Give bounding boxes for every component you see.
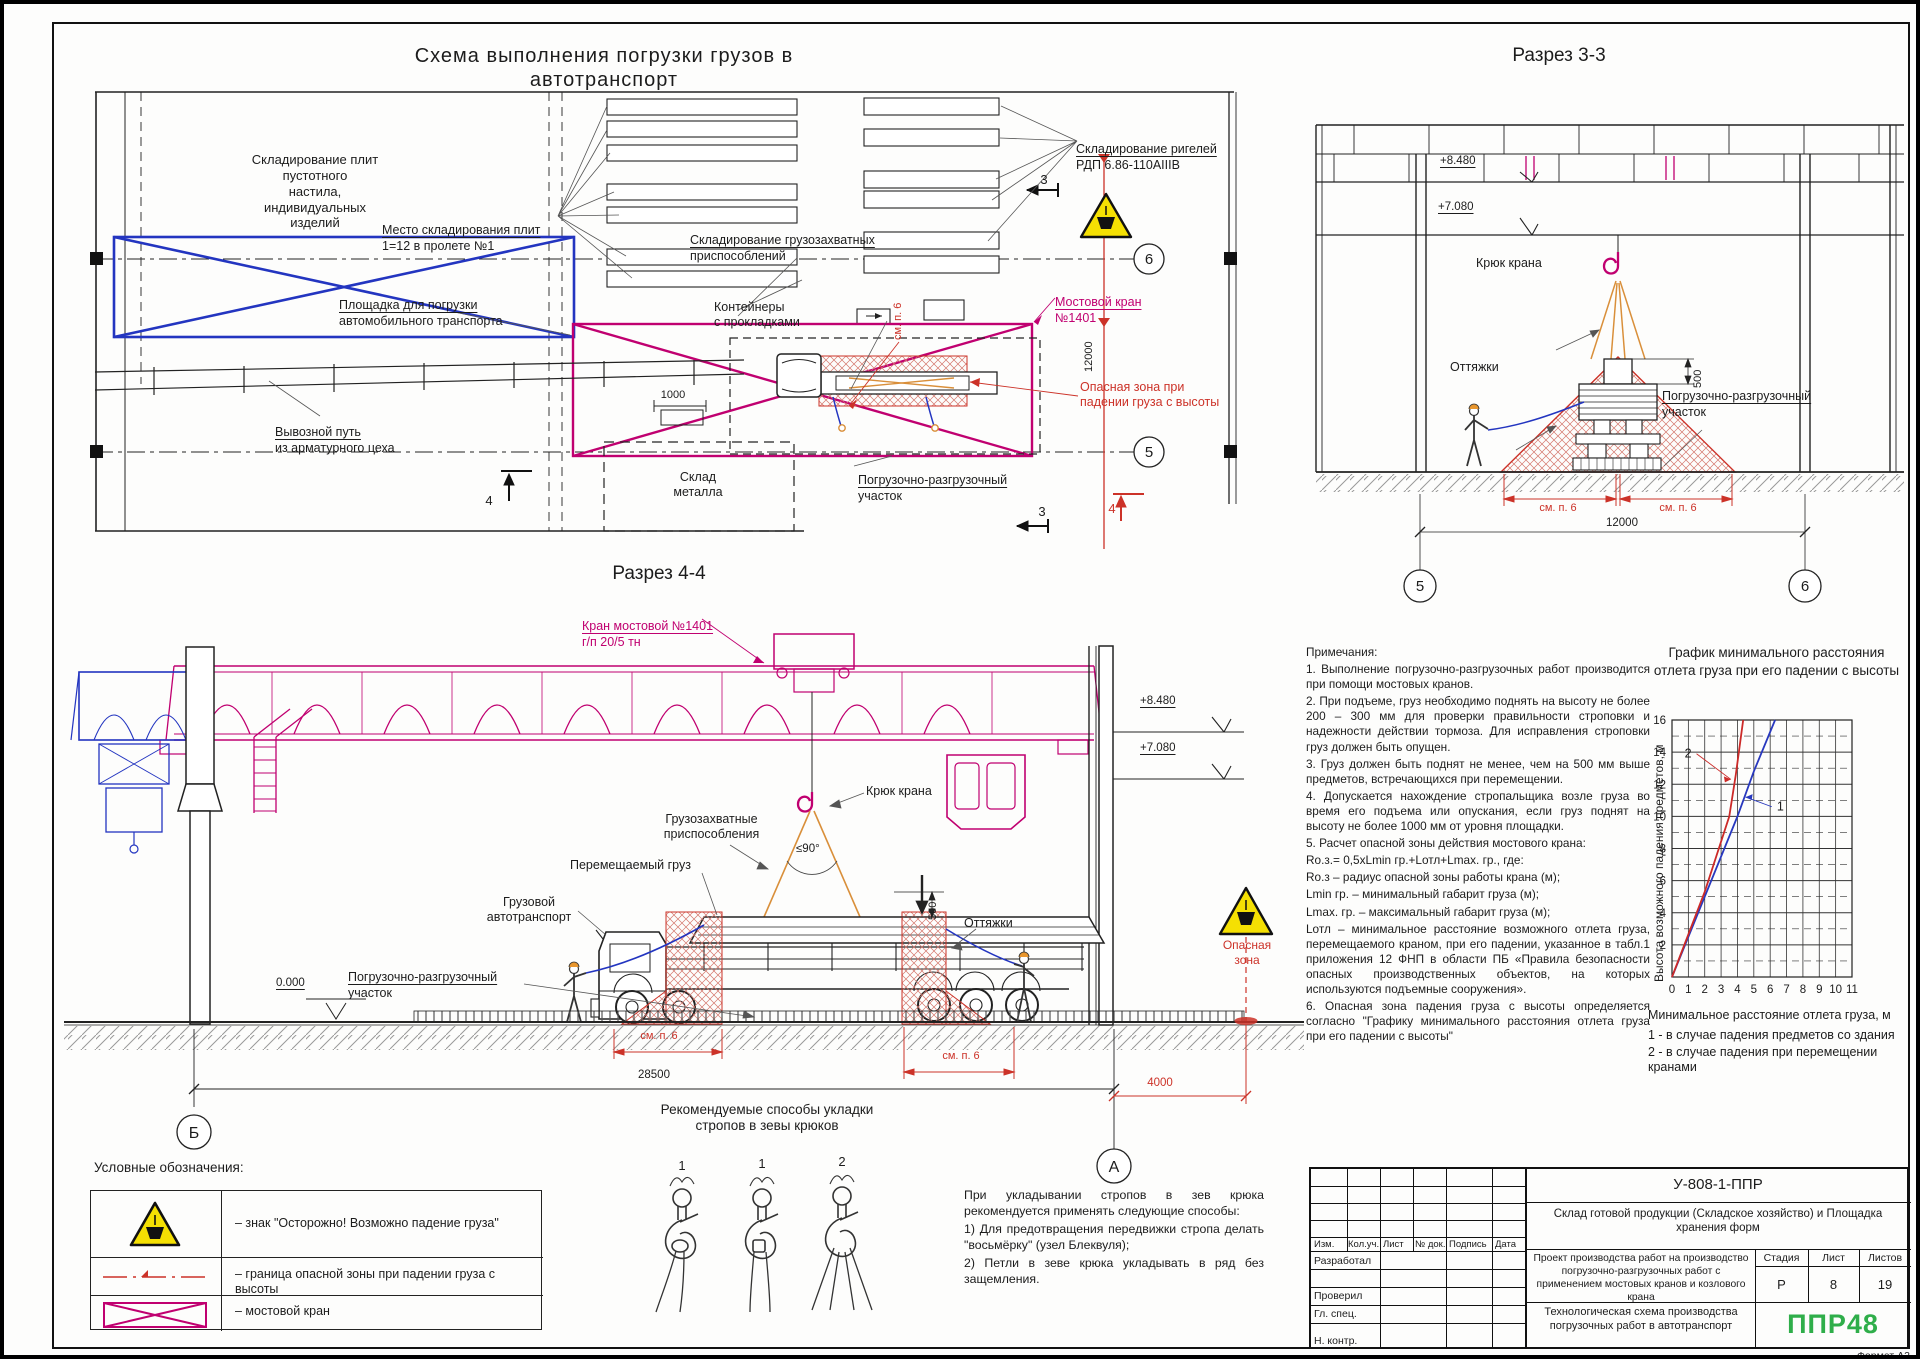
note-item: 3. Груз должен быть поднят не менее, чем… [1306, 757, 1650, 787]
svg-text:5: 5 [1145, 444, 1153, 461]
hooks-text-item-2: 2) Петли в зеве крюка укладывать в ряд б… [964, 1256, 1264, 1288]
tb-col-koluch: Кол.уч. [1348, 1239, 1379, 1251]
sec44-danger-zone-label: Опасная зона [1210, 938, 1284, 967]
svg-text:3: 3 [1718, 984, 1724, 996]
sec44-slings [764, 811, 860, 917]
plan-containers [857, 300, 964, 324]
sec44-crane-hook-icon [798, 792, 812, 812]
drawing-sheet: 6 5 [0, 0, 1920, 1359]
plan-label-rail: Вывозной путьиз арматурного цеха [275, 410, 435, 471]
tb-sheets-value: 19 [1859, 1277, 1911, 1293]
tb-scheme-title: Технологическая схема производства погру… [1530, 1306, 1752, 1334]
svg-text:1: 1 [1685, 984, 1691, 996]
plan-label-danger-zone: Опасная зона при падении груза с высоты [1080, 380, 1235, 411]
sec44-zero-level-label: 0.000 [276, 976, 305, 990]
plan-axis-markers: 6 5 [1134, 244, 1164, 467]
legend-warning-sign-icon [127, 1199, 183, 1251]
tb-role-chief: Гл. спец. [1314, 1308, 1357, 1321]
sec44-level-marks [1113, 717, 1244, 779]
note-item: Rо.з.= 0,5хLmin гр.+Lотл+Lmax. гр., где: [1306, 853, 1650, 868]
title-block: Изм. Кол.уч. Лист № док. Подпись Дата Ра… [1309, 1167, 1909, 1349]
tb-col-podpis: Подпись [1449, 1239, 1487, 1251]
sec44-hook-label: Крюк крана [866, 784, 932, 799]
svg-text:6: 6 [1767, 984, 1773, 996]
hook-methods-drawing: 1 1 2 [624, 1154, 914, 1344]
plan-danger-sign-icon [1081, 194, 1131, 237]
legend-item-boundary: – граница опасной зоны при падении груза… [235, 1267, 540, 1298]
tb-sheet-value: 8 [1808, 1277, 1859, 1293]
sec44-dim-28500-label: 28500 [594, 1068, 714, 1082]
svg-text:5: 5 [1751, 984, 1757, 996]
plan-label-containers: Контейнеры с прокладками [714, 300, 824, 331]
sec33-dim-12000-label: 12000 [1574, 516, 1670, 530]
chart-title: График минимального расстояния отлета гр… [1649, 644, 1904, 679]
hook-icon-3 [812, 1175, 872, 1310]
sec44-dim-4000-label: 4000 [1124, 1076, 1196, 1090]
tb-sheets-label: Листов [1859, 1252, 1911, 1265]
svg-text:Б: Б [189, 1125, 200, 1142]
legend-table: – знак "Осторожно! Возможно падение груз… [90, 1190, 542, 1330]
sec33-slings [1591, 281, 1645, 359]
sec33-level-8480-label: +8.480 [1440, 154, 1476, 168]
plan-see-p6-label: см. п. 6 [892, 303, 905, 340]
note-item: 2. При подъеме, груз необходимо поднять … [1306, 694, 1650, 754]
tb-col-izm: Изм. [1314, 1239, 1334, 1251]
plan-label-rigging-storage: Складирование грузозахватныхприспособлен… [690, 218, 900, 279]
sec44-loading-section-label: Погрузочно-разгрузочныйучасток [348, 955, 533, 1016]
hooks-text-item-1: 1) Для предотвращения передвижки стропа … [964, 1222, 1264, 1254]
svg-text:1: 1 [758, 1156, 765, 1171]
plan-label-loading-area: Площадка для погрузкиавтомобильного тран… [339, 283, 534, 344]
note-item: Lотл – минимальное расстояние возможного… [1306, 922, 1650, 997]
svg-text:2: 2 [1702, 984, 1708, 996]
note-item: 5. Расчет опасной зоны действия мостовог… [1306, 836, 1650, 851]
sec44-crane-cab [947, 755, 1025, 829]
svg-text:10: 10 [1829, 984, 1842, 996]
sec44-dim-500-label: 500 [927, 902, 940, 920]
section-3-3-title: Разрез 3-3 [1474, 44, 1644, 67]
tb-col-list: Лист [1383, 1239, 1404, 1251]
svg-text:4: 4 [1734, 984, 1741, 996]
sec44-level-7080-label: +7.080 [1140, 741, 1176, 755]
sec33-guys-label: Оттяжки [1450, 360, 1499, 375]
note-item: Lmax. гр. – максимальный габарит груза (… [1306, 905, 1650, 920]
chart-legend-line-2: 2 - в случае падения при перемещении кра… [1648, 1045, 1904, 1076]
tb-logo: ППР48 [1755, 1308, 1911, 1342]
main-title: Схема выполнения погрузки грузов в автот… [364, 44, 844, 93]
note-item: Rо.з – радиус опасной зоны работы крана … [1306, 870, 1650, 885]
tb-sheet-label: Лист [1808, 1252, 1859, 1265]
sec44-see-p6-left-label: см. п. 6 [604, 1030, 714, 1043]
sec44-blue-crane [71, 672, 189, 853]
plan-section-mark-3-bottom-label: 3 [1032, 504, 1052, 520]
hooks-text-intro: При укладывании стропов в зев крюка реко… [964, 1188, 1264, 1220]
plan-label-loading-section: Погрузочно-разгрузочныйучасток [858, 458, 1038, 519]
legend-item-sign: – знак "Осторожно! Возможно падение груз… [235, 1216, 535, 1231]
sec33-level-7080-label: +7.080 [1438, 200, 1474, 214]
chart-xlabel: Минимальное расстояние отлета груза, м [1648, 1008, 1912, 1023]
tb-project: Проект производства работ на производств… [1530, 1253, 1752, 1304]
note-item: 4. Допускается нахождение стропальщика в… [1306, 789, 1650, 834]
svg-text:1: 1 [1777, 800, 1784, 814]
plan-label-girder-storage: Складирование ригелейРДП 6.86-110АIIIВ [1076, 127, 1241, 188]
section-4-4-title: Разрез 4-4 [569, 562, 749, 585]
chart-legend-line-1: 1 - в случае падения предметов со здания [1648, 1028, 1912, 1043]
svg-text:2: 2 [838, 1154, 845, 1169]
sec44-moved-load-label: Перемещаемый груз [570, 858, 691, 873]
tb-col-ndok: № док. [1415, 1239, 1445, 1251]
fall-distance-chart: 2468101214160123456789101112 [1644, 704, 1914, 1004]
tb-col-data: Дата [1495, 1239, 1516, 1251]
tb-object: Склад готовой продукции (Складское хозяй… [1535, 1207, 1901, 1236]
sec33-see-p6-right-label: см. п. 6 [1630, 502, 1726, 515]
svg-text:1: 1 [678, 1158, 685, 1173]
plan-dim-12000-label: 12000 [1083, 341, 1096, 372]
sec33-hook-label: Крюк крана [1476, 256, 1542, 271]
sec33-dim-500-label: 500 [1692, 370, 1705, 388]
sec33-see-p6-left-label: см. п. 6 [1510, 502, 1606, 515]
sec44-rigging-label: Грузозахватные приспособления [649, 812, 774, 843]
plan-section-mark-3-top-label: 3 [1034, 172, 1054, 188]
plan-section-mark-4-left-label: 4 [480, 493, 498, 509]
tb-doc-number: У-808-1-ППР [1525, 1176, 1911, 1195]
sec33-loading-section-label: Погрузочно-разгрузочныйучасток [1662, 374, 1847, 435]
tb-stage-label: Стадия [1755, 1252, 1808, 1265]
svg-text:А: А [1109, 1159, 1120, 1176]
tb-stage-value: Р [1755, 1277, 1808, 1293]
tb-role-developed: Разработал [1314, 1255, 1371, 1268]
notes-title: Примечания: [1306, 645, 1650, 660]
sec44-load [690, 917, 1104, 943]
plan-label-metal-store: Склад металла [662, 470, 734, 501]
sec44-level-8480-label: +8.480 [1140, 694, 1176, 708]
legend-bridge-crane-icon [99, 1299, 213, 1331]
chart-ylabel: Высота возможного падения предметов, м [1652, 744, 1667, 982]
plan-label-slab-storage: Складирование плит пустотного настила, и… [247, 152, 383, 231]
legend-danger-boundary-icon [99, 1263, 213, 1287]
sec44-ladder [254, 709, 312, 813]
tb-role-checked: Проверил [1314, 1290, 1362, 1303]
plan-dim-1000-label: 1000 [644, 389, 702, 402]
sec33-axis-markers: 5 6 [1404, 539, 1821, 602]
legend-title: Условные обозначения: [94, 1160, 244, 1176]
plan-section-mark-4-right-label: 4 [1103, 501, 1121, 517]
svg-text:0: 0 [1669, 984, 1675, 996]
section-3-3-drawing: 5 6 [1294, 84, 1914, 629]
svg-text:11: 11 [1846, 984, 1858, 996]
format-note: Формат А2 [1832, 1350, 1910, 1359]
hook-icon-2 [746, 1177, 778, 1312]
svg-text:7: 7 [1783, 984, 1789, 996]
sec44-crane-label: Кран мостовой №1401г/п 20/5 тн [582, 604, 752, 665]
plan-truck [777, 354, 997, 431]
plan-label-slab-place: Место складирования плит1=12 в пролете №… [382, 208, 562, 269]
note-item: 6. Опасная зона падения груза с высоты о… [1306, 999, 1650, 1044]
legend-item-crane: – мостовой кран [235, 1304, 535, 1319]
svg-text:5: 5 [1416, 578, 1424, 595]
svg-text:16: 16 [1653, 715, 1666, 727]
sec44-truck-label: Грузовой автотранспорт [474, 895, 584, 926]
hooks-title: Рекомендуемые способы укладки стропов в … [642, 1102, 892, 1135]
svg-text:2: 2 [1685, 747, 1692, 761]
note-item: Lmin гр. – минимальный габарит груза (м)… [1306, 887, 1650, 902]
sec44-angle-label: ≤90° [796, 842, 820, 856]
plan-label-bridge-crane: Мостовой кран№1401 [1055, 280, 1175, 341]
hook-icon-1 [656, 1177, 698, 1312]
sec44-paved-strip [414, 1011, 1244, 1022]
notes-block: Примечания: 1. Выполнение погрузочно-раз… [1306, 645, 1650, 1046]
svg-text:9: 9 [1816, 984, 1822, 996]
sec33-crane-hook-icon [1604, 252, 1618, 274]
note-item: 1. Выполнение погрузочно-разгрузочных ра… [1306, 662, 1650, 692]
svg-text:6: 6 [1801, 578, 1809, 595]
sec33-worker [1465, 404, 1488, 466]
hooks-recommendations: При укладывании стропов в зев крюка реко… [964, 1188, 1264, 1290]
sec44-danger-sign-icon [1220, 888, 1272, 934]
plan-dim-1000 [654, 400, 706, 425]
svg-text:8: 8 [1800, 984, 1806, 996]
svg-text:6: 6 [1145, 251, 1153, 268]
sec44-guys-label: Оттяжки [964, 916, 1013, 931]
tb-role-ncontr: Н. контр. [1314, 1335, 1357, 1348]
sec44-see-p6-right-label: см. п. 6 [906, 1050, 1016, 1063]
